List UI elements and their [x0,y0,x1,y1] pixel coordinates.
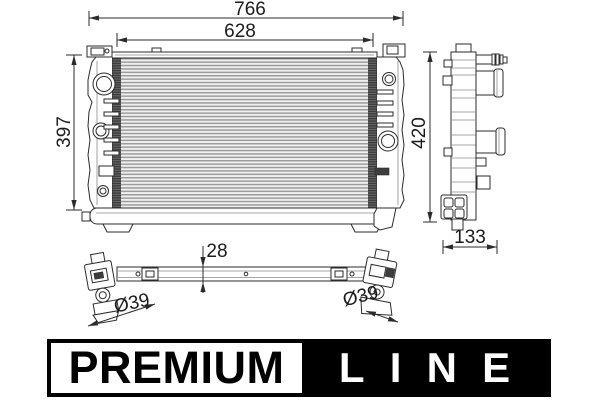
logo-premium-section: PREMIUM [51,343,302,393]
radiator-technical-drawing: 766 628 397 420 133 28 Ø39 Ø39 [0,0,600,400]
front-view [82,44,405,232]
side-port-upper [476,69,503,97]
dim-420-label: 420 [409,117,430,149]
top-clip-right [352,48,362,52]
bottom-stub [82,212,90,221]
dimension-left-height: 397 [54,55,82,210]
dimension-overall-height: 420 [409,52,437,222]
dim-28-label: 28 [206,241,227,262]
right-port-upper [383,73,396,86]
left-port-lower [98,186,109,197]
logo-premium-text: PREMIUM [69,342,285,394]
bottom-foot-left [103,224,133,232]
right-clip [375,168,389,175]
dim-766-label: 766 [234,0,266,20]
logo-line-section: LINE [302,343,547,393]
dim-628-label: 628 [224,21,256,42]
premium-line-logo: PREMIUM LINE [47,339,551,397]
side-port-lower [476,128,505,155]
side-view [441,44,507,230]
bottom-tank [82,208,386,232]
dim-133-label: 133 [454,227,486,248]
left-stub [99,166,114,176]
dim-397-label: 397 [54,116,75,148]
side-block-2 [477,176,490,189]
side-top-cap [456,44,471,52]
side-tab-2 [443,76,452,85]
bottom-fitting-right [357,248,404,319]
right-tank [374,44,405,230]
side-foot-bracket [441,195,467,230]
side-tab-3 [444,148,452,156]
top-clip-left [152,48,161,52]
dimension-core-width: 628 [117,21,373,47]
side-hose-fitting [476,54,507,65]
dia-39-left-label: Ø39 [112,290,152,318]
side-block-1 [476,158,486,166]
side-tab-1 [444,60,452,67]
logo-line-text: LINE [339,344,535,392]
dimension-depth: 133 [443,227,497,254]
right-lower-foot [374,208,396,230]
